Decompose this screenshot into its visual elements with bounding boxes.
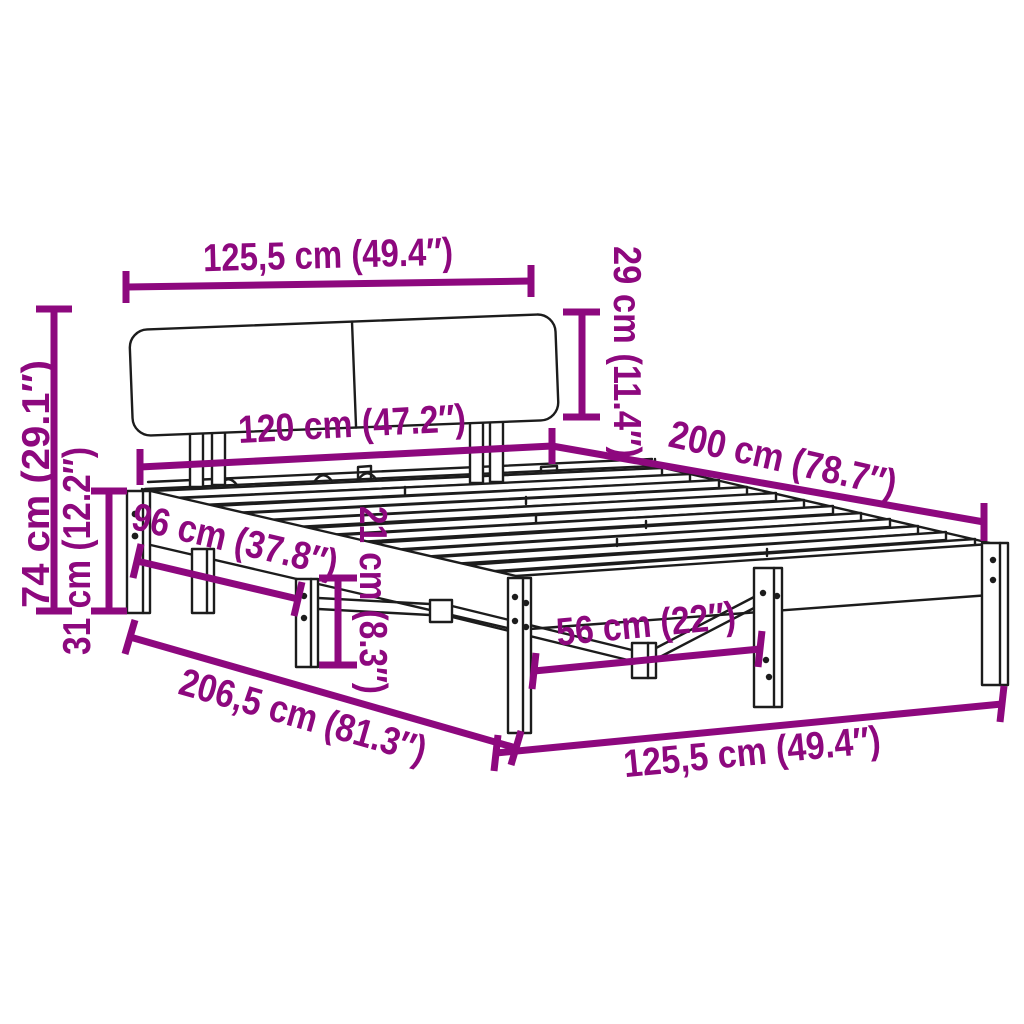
label-under-bed-clearance: 21 cm (8.3″)	[351, 506, 394, 694]
dim-headboard-height	[563, 312, 600, 417]
bed-frame-dimension-diagram: 125,5 cm (49.4″) 29 cm (11.4″) 120 cm (4…	[0, 0, 1024, 1024]
label-side-rail-height: 31 cm (12.2″)	[56, 447, 99, 655]
label-headboard-height: 29 cm (11.4″)	[605, 246, 648, 458]
label-total-height: 74 cm (29.1″)	[15, 360, 58, 608]
leg-center-mid-small	[430, 600, 452, 622]
label-headboard-width: 125,5 cm (49.4″)	[202, 231, 453, 281]
screenshot-canvas: 125,5 cm (49.4″) 29 cm (11.4″) 120 cm (4…	[0, 0, 1024, 1024]
leg-foot-right-corner	[982, 543, 1008, 685]
leg-foot-near-corner	[508, 578, 531, 733]
